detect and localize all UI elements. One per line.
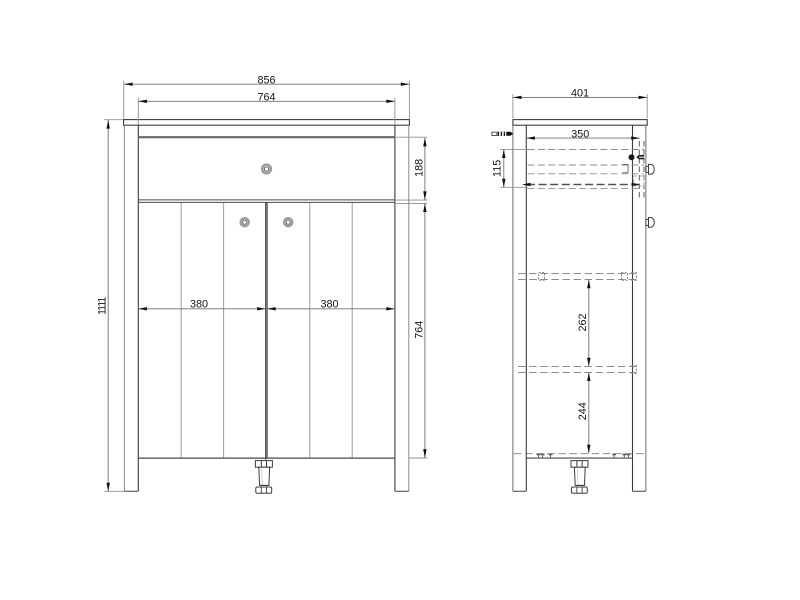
svg-text:764: 764 bbox=[257, 92, 275, 104]
svg-text:856: 856 bbox=[257, 74, 275, 86]
svg-text:188: 188 bbox=[413, 159, 425, 177]
svg-text:350: 350 bbox=[571, 128, 589, 140]
svg-text:380: 380 bbox=[190, 299, 208, 311]
svg-text:764: 764 bbox=[413, 321, 425, 339]
svg-text:401: 401 bbox=[571, 88, 589, 100]
svg-text:244: 244 bbox=[577, 402, 589, 420]
svg-text:1111: 1111 bbox=[97, 297, 109, 315]
svg-text:262: 262 bbox=[577, 313, 589, 331]
svg-text:115: 115 bbox=[492, 160, 504, 177]
svg-text:380: 380 bbox=[320, 299, 338, 311]
